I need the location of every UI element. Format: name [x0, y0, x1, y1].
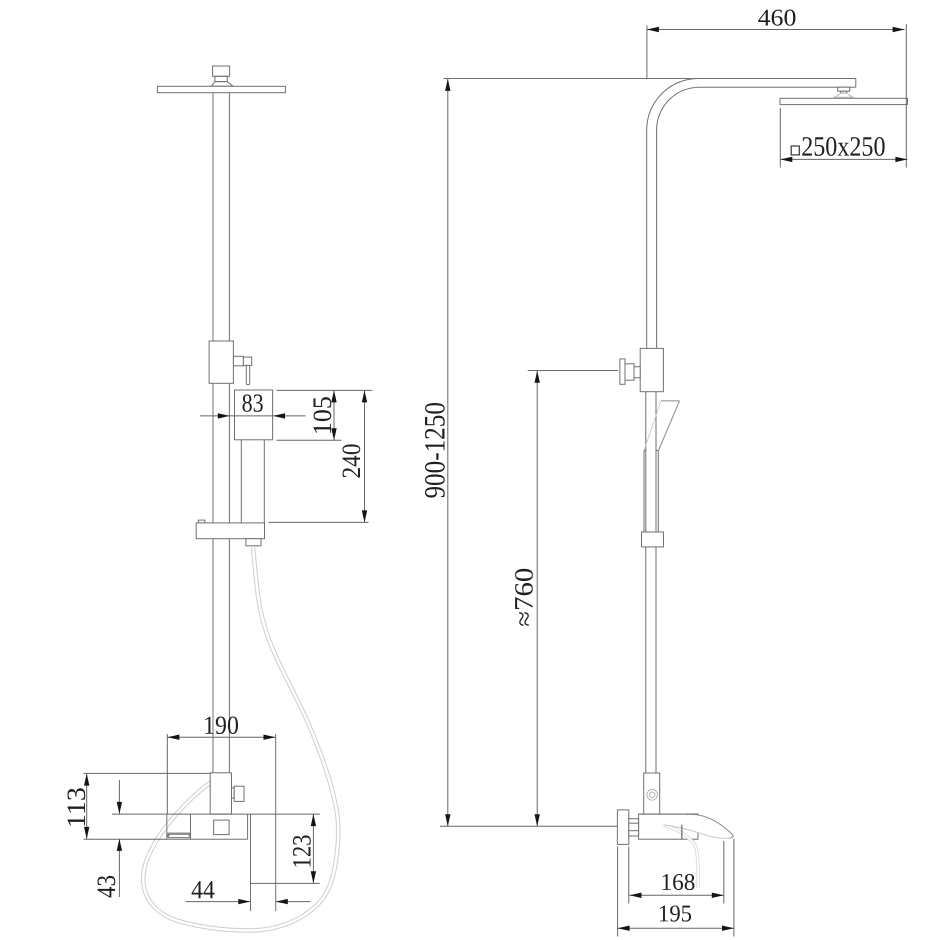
- svg-text:900-1250: 900-1250: [419, 402, 452, 499]
- svg-text:43: 43: [92, 875, 121, 898]
- svg-text:83: 83: [242, 389, 264, 418]
- svg-text:168: 168: [660, 870, 695, 896]
- svg-text:105: 105: [308, 396, 337, 435]
- svg-text:≈760: ≈760: [510, 568, 539, 627]
- svg-text:44: 44: [191, 875, 215, 904]
- svg-text:190: 190: [203, 711, 239, 740]
- svg-text:123: 123: [287, 835, 316, 869]
- svg-text:240: 240: [337, 444, 366, 479]
- svg-text:250x250: 250x250: [801, 132, 885, 163]
- svg-text:460: 460: [758, 5, 797, 31]
- svg-text:195: 195: [658, 901, 692, 927]
- svg-text:113: 113: [62, 787, 91, 828]
